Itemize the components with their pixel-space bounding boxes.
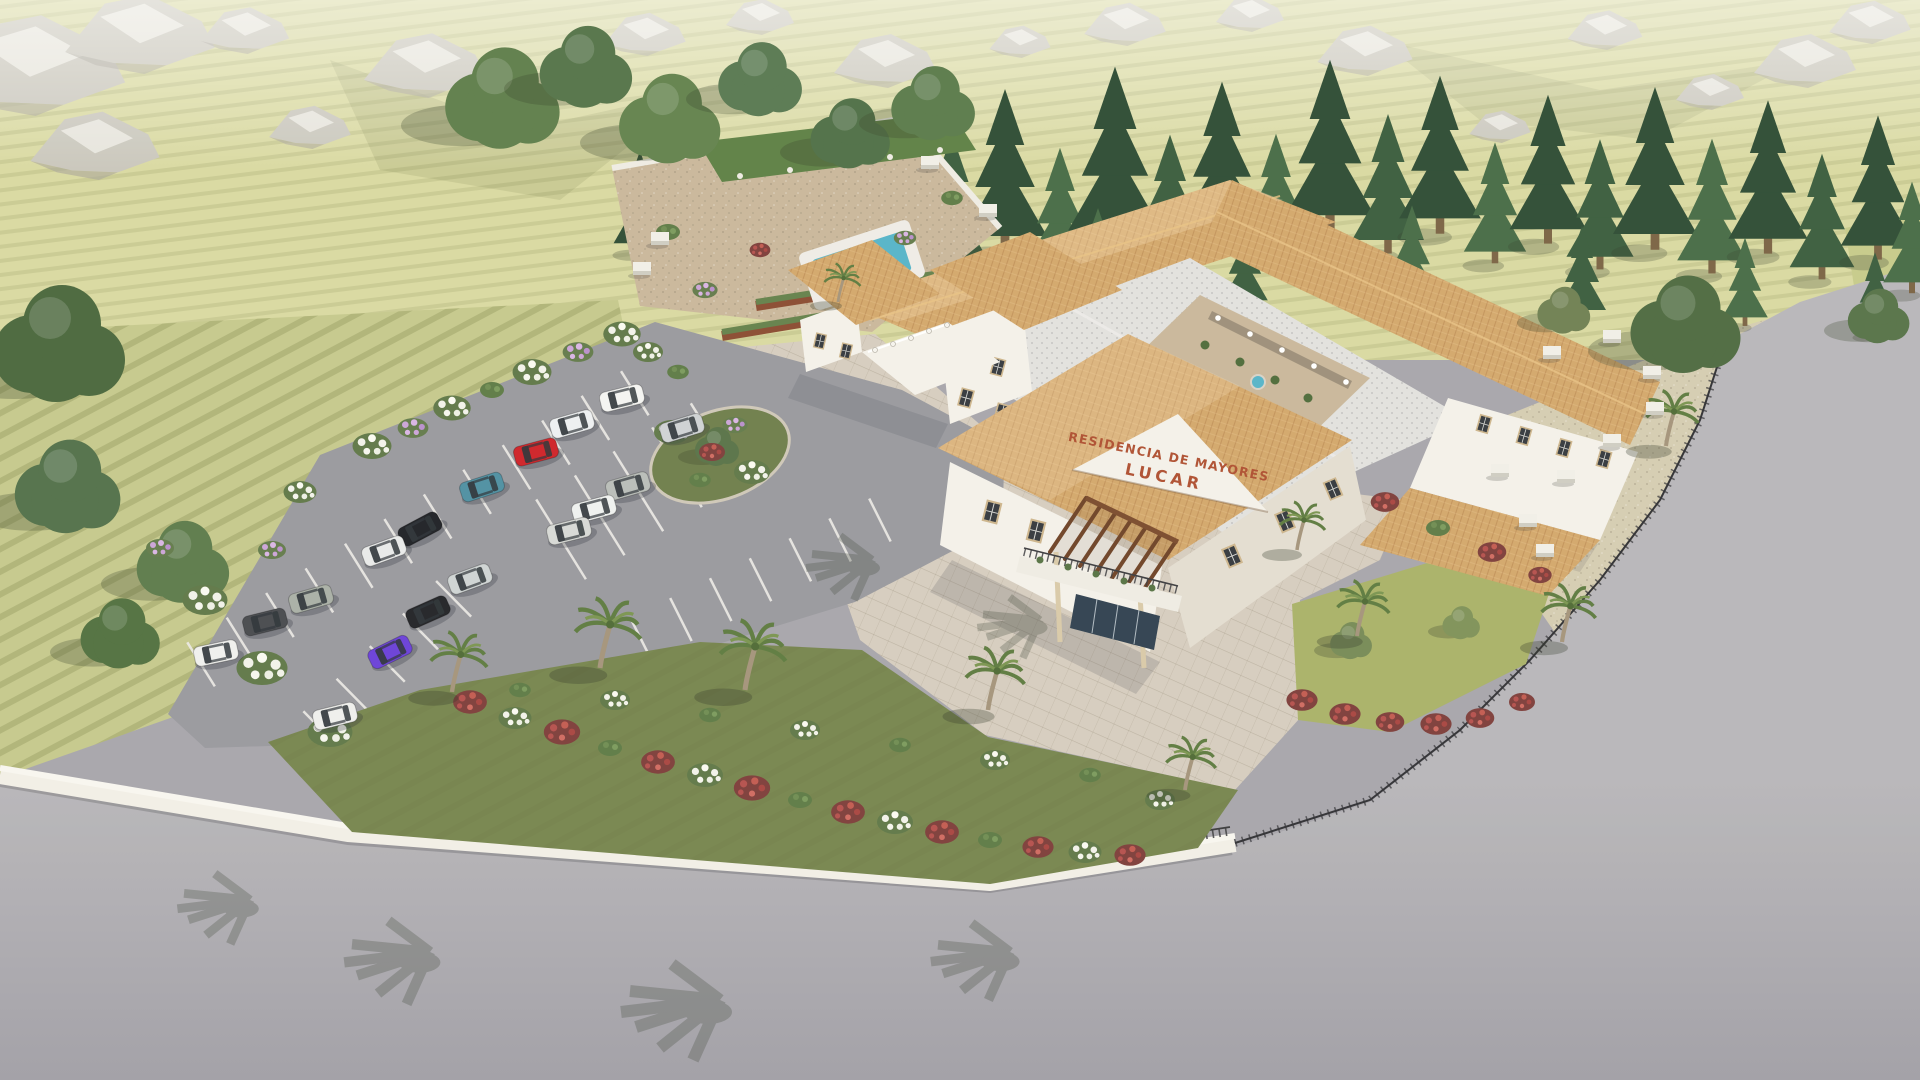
architectural-rendering: RESIDENCIA DE MAYORES LUCAR <box>0 0 1920 1080</box>
scene-canvas: RESIDENCIA DE MAYORES LUCAR <box>0 0 1920 1080</box>
light-wash <box>0 0 1920 1080</box>
